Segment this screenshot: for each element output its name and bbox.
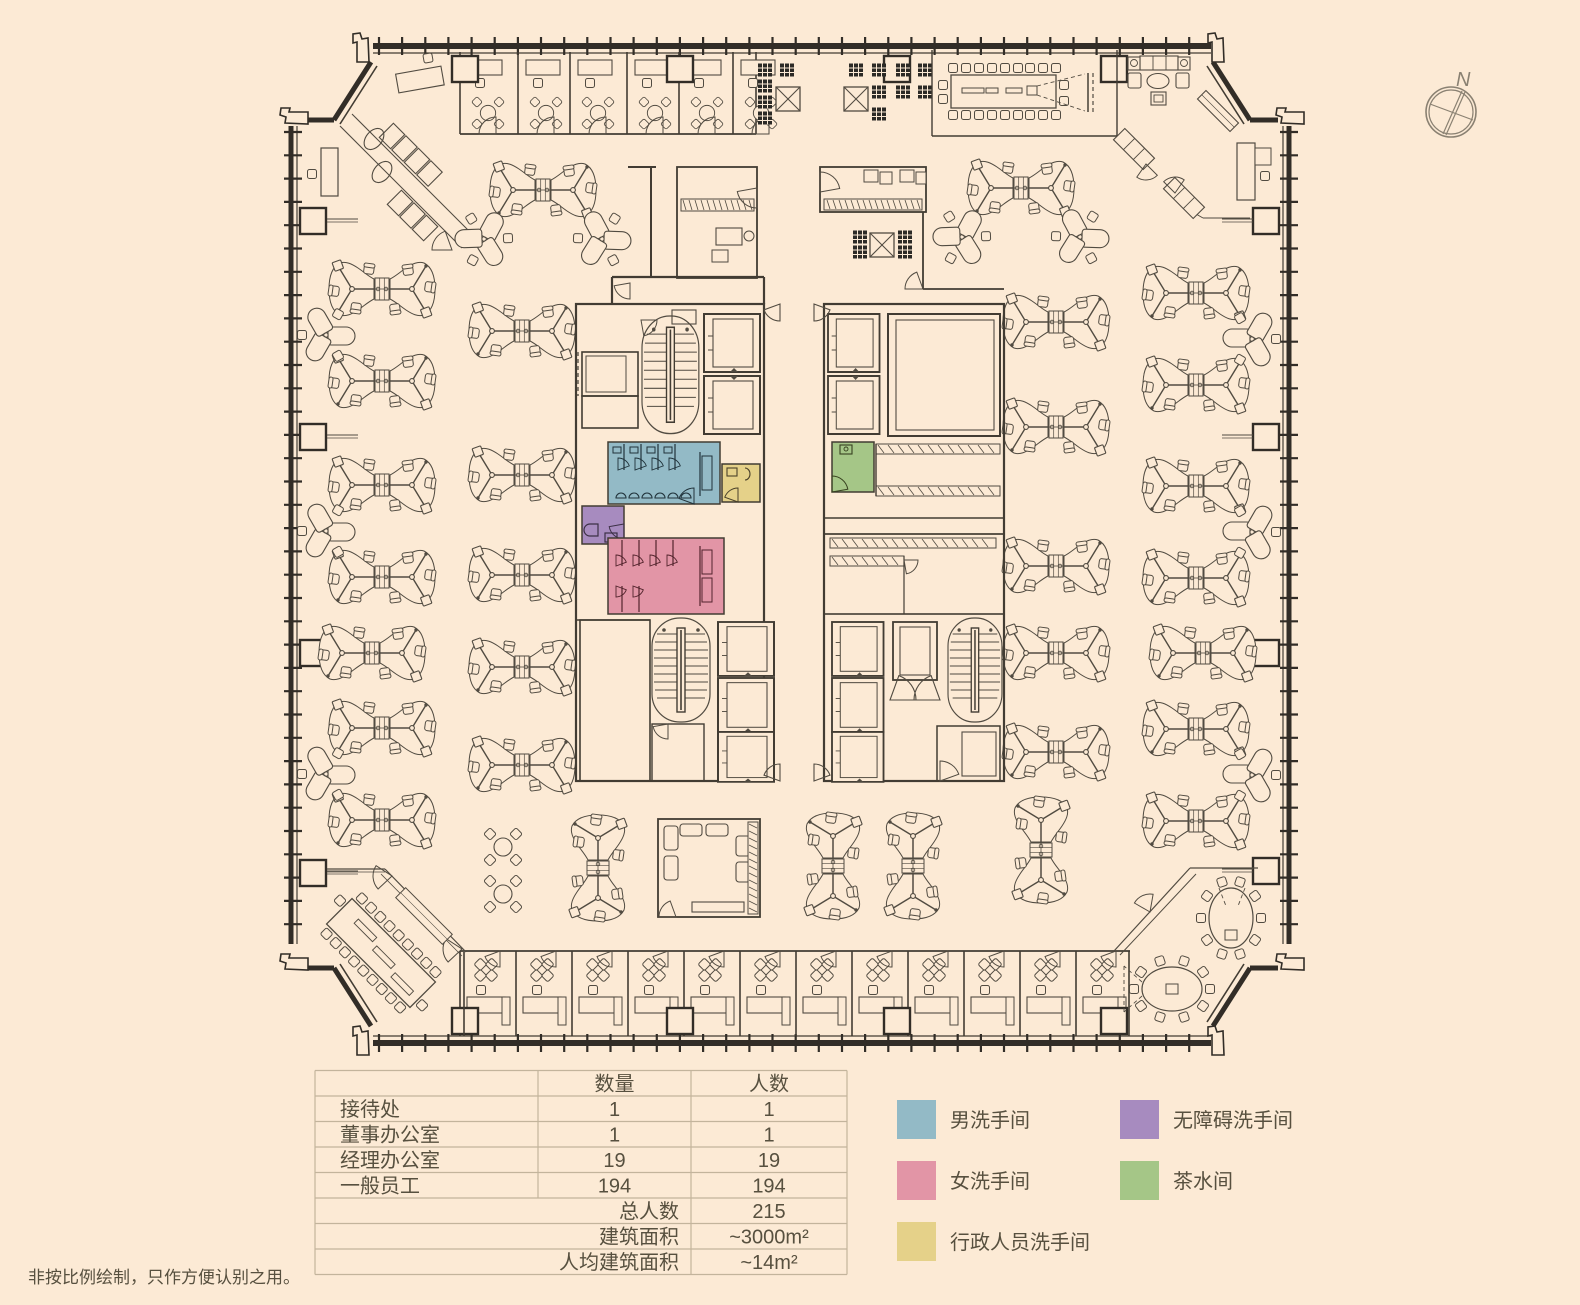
svg-text:194: 194 [752,1175,785,1197]
svg-text:总人数: 总人数 [619,1200,679,1223]
svg-text:行政人员洗手间: 行政人员洗手间 [950,1231,1090,1254]
svg-text:1: 1 [763,1124,774,1146]
svg-text:N: N [1456,69,1471,91]
svg-text:215: 215 [752,1201,785,1223]
svg-text:非按比例绘制，只作方便认别之用。: 非按比例绘制，只作方便认别之用。 [28,1268,300,1287]
svg-text:19: 19 [758,1150,780,1172]
svg-text:男洗手间: 男洗手间 [950,1109,1030,1132]
svg-text:茶水间: 茶水间 [1173,1170,1233,1193]
svg-text:建筑面积: 建筑面积 [599,1225,679,1248]
svg-text:经理办公室: 经理办公室 [340,1149,440,1172]
svg-text:人均建筑面积: 人均建筑面积 [559,1251,679,1274]
svg-text:1: 1 [609,1099,620,1121]
svg-text:1: 1 [763,1099,774,1121]
svg-text:女洗手间: 女洗手间 [950,1170,1030,1193]
svg-text:一般员工: 一般员工 [340,1174,420,1197]
svg-text:19: 19 [603,1150,625,1172]
svg-text:~3000m²: ~3000m² [729,1226,809,1248]
svg-text:数量: 数量 [595,1072,635,1095]
svg-text:人数: 人数 [749,1072,789,1095]
svg-text:~14m²: ~14m² [740,1252,798,1274]
svg-text:194: 194 [598,1175,631,1197]
svg-text:接待处: 接待处 [340,1098,400,1121]
svg-text:无障碍洗手间: 无障碍洗手间 [1173,1109,1293,1132]
svg-text:董事办公室: 董事办公室 [340,1123,440,1146]
svg-text:1: 1 [609,1124,620,1146]
